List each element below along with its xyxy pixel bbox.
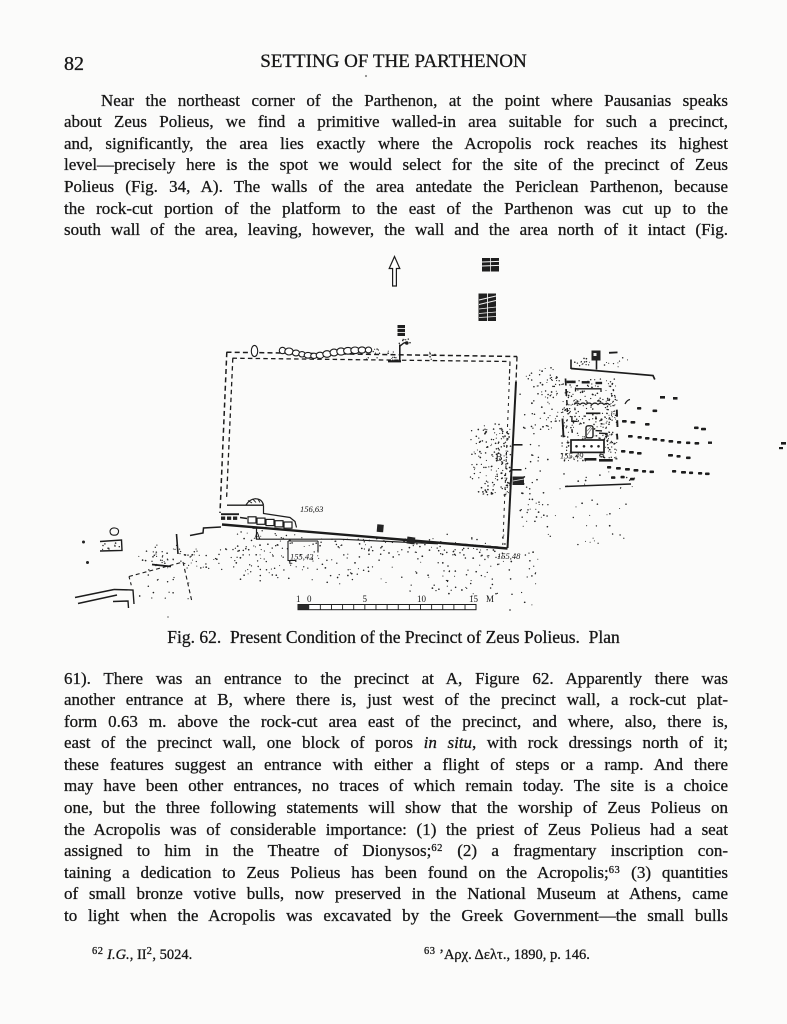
svg-text:15: 15 (469, 594, 479, 604)
svg-text:155,42: 155,42 (290, 552, 314, 562)
svg-text:5: 5 (363, 594, 368, 604)
svg-text:M: M (486, 594, 494, 604)
svg-text:156,63: 156,63 (300, 504, 323, 514)
svg-text:1: 1 (296, 594, 301, 604)
svg-text:155,49: 155,49 (560, 451, 584, 461)
svg-text:155,48: 155,48 (497, 551, 521, 561)
svg-text:10: 10 (417, 594, 427, 604)
svg-text:0: 0 (307, 594, 312, 604)
